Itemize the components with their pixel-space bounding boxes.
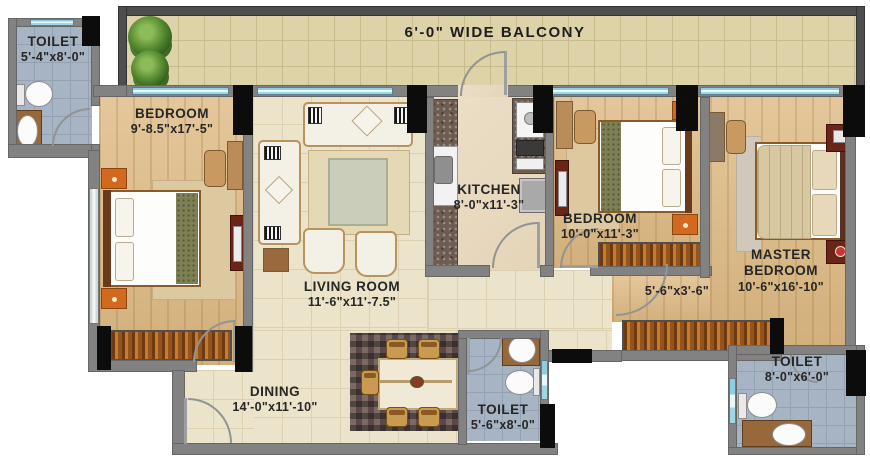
balcony-right-wall [856, 6, 865, 92]
room-dims: 5'-6"x8'-0" [464, 418, 542, 433]
toilet-fixture [505, 370, 535, 395]
stove-drawer [516, 158, 544, 170]
bed-pillow [812, 194, 837, 236]
striped-pillow [308, 107, 322, 124]
kitchen-label: KITCHEN 8'-0"x11'-3" [436, 182, 542, 214]
nightstand [101, 168, 127, 189]
bedroom1-headboard [103, 190, 111, 287]
dining-chair [361, 370, 379, 395]
corridor-floor [428, 270, 612, 332]
room-dims: 10'-0"x11'-3" [550, 227, 650, 242]
bedroom1-side-window [89, 188, 99, 324]
tv-screen [233, 226, 242, 262]
bed-pillow [115, 198, 134, 237]
toilet-br-label: TOILET 8'-0"x6'-0" [743, 354, 851, 386]
wall-column [770, 318, 784, 354]
passage-label: 5'-6"x3'-6" [627, 284, 727, 299]
side-table [263, 248, 289, 272]
bed-pillow [812, 150, 837, 190]
toilet-fixture [533, 368, 540, 396]
dining-chair [386, 407, 408, 427]
bedroom1-label: BEDROOM 9'-8.5"x17'-5" [102, 106, 242, 138]
bedroom2-label: BEDROOM 10'-0"x11'-3" [550, 211, 650, 243]
toilet-tl-window [30, 19, 74, 26]
coffee-table [328, 158, 388, 226]
dining-chair [418, 339, 440, 359]
bedroom2-window [537, 87, 669, 95]
wall-stub [93, 85, 127, 97]
wall-column [533, 85, 553, 133]
room-name: BEDROOM [102, 106, 242, 122]
room-dims: 11'-6"x11'-7.5" [272, 295, 432, 310]
room-name: BEDROOM [719, 263, 843, 279]
room-dims: 10'-6"x16'-10" [719, 280, 843, 295]
kitchen-bottom-wall [540, 265, 554, 277]
toilet-mid-window [541, 360, 548, 400]
bed-pillow [115, 242, 134, 281]
kitchen-bottom-wall [425, 265, 490, 277]
sink-basin [17, 115, 38, 147]
nightstand [672, 214, 698, 235]
room-dims: 5'-6"x3'-6" [627, 284, 727, 299]
armchair [303, 228, 345, 274]
wall-column [235, 326, 252, 372]
room-dims: 5'-4"x8'-0" [14, 50, 92, 65]
centerpiece [410, 376, 424, 388]
striped-pillow [264, 146, 281, 160]
room-dims: 14'-0"x11'-10" [200, 400, 350, 415]
toilet-tl-bottom-wall [8, 144, 100, 158]
dining-chair [418, 407, 440, 427]
wall-column [676, 85, 698, 131]
toilet-fixture [16, 84, 25, 106]
room-name: MASTER [719, 247, 843, 263]
bed-pillow [662, 169, 681, 207]
bed-runner [601, 122, 621, 211]
master-label: MASTER BEDROOM 10'-6"x16'-10" [719, 247, 843, 295]
wall-column [843, 85, 865, 137]
dining-label: DINING 14'-0"x11'-10" [200, 384, 350, 416]
room-name: TOILET [743, 354, 851, 370]
sink-basin [772, 423, 806, 446]
wall-column [552, 349, 592, 363]
room-name: LIVING ROOM [272, 279, 432, 295]
wall-column [540, 404, 555, 448]
room-name: TOILET [464, 402, 542, 418]
bedroom1-window [132, 87, 229, 95]
armchair [355, 231, 397, 277]
wall-column [407, 85, 427, 133]
master-blanket [757, 145, 811, 239]
living-label: LIVING ROOM 11'-6"x11'-7.5" [272, 279, 432, 311]
nightstand [101, 288, 127, 309]
dresser [556, 101, 573, 149]
kitchen-sink-basin [434, 156, 453, 184]
balcony-label: 6'-0" WIDE BALCONY [330, 24, 660, 41]
room-dims: 9'-8.5"x17'-5" [102, 122, 242, 137]
sink-basin [508, 336, 536, 363]
toilet-br-bottom-wall [728, 447, 865, 455]
room-name: KITCHEN [436, 182, 542, 198]
room-dims: 8'-0"x6'-0" [743, 370, 851, 385]
entry-door-leaf [184, 398, 187, 444]
master-window [700, 87, 840, 95]
wall-column [97, 326, 111, 370]
room-dims: 8'-0"x11'-3" [436, 198, 542, 213]
bedroom2-headboard [685, 120, 692, 213]
room-name: TOILET [14, 34, 92, 50]
plant-icon [131, 50, 169, 88]
bed-runner [176, 193, 198, 284]
toilet-fixture [738, 393, 747, 419]
floor-plan: 6'-0" WIDE BALCONY TOILET 5'-4"x8'-0" [0, 0, 870, 460]
dining-bottom-wall [172, 443, 558, 455]
bed-pillow [662, 127, 681, 165]
striped-pillow [394, 107, 408, 124]
dining-chair [386, 339, 408, 359]
tv-screen [558, 171, 567, 207]
room-name: DINING [200, 384, 350, 400]
toilet-fixture [25, 81, 53, 107]
balcony-top-wall [118, 6, 865, 16]
bench [204, 150, 226, 187]
striped-pillow [264, 226, 281, 240]
toilet-mid-label: TOILET 5'-6"x8'-0" [464, 402, 542, 434]
bedroom2-master-wall [700, 97, 710, 278]
bench [574, 110, 596, 144]
living-window [257, 87, 393, 95]
toilet-tl-label: TOILET 5'-4"x8'-0" [14, 34, 92, 66]
stove-hob [516, 140, 544, 156]
dresser [227, 141, 243, 190]
balcony-left-wall [118, 6, 127, 92]
toilet-fixture [747, 392, 777, 418]
room-name: BEDROOM [550, 211, 650, 227]
toilet-br-window [729, 378, 736, 424]
bench [726, 120, 746, 154]
